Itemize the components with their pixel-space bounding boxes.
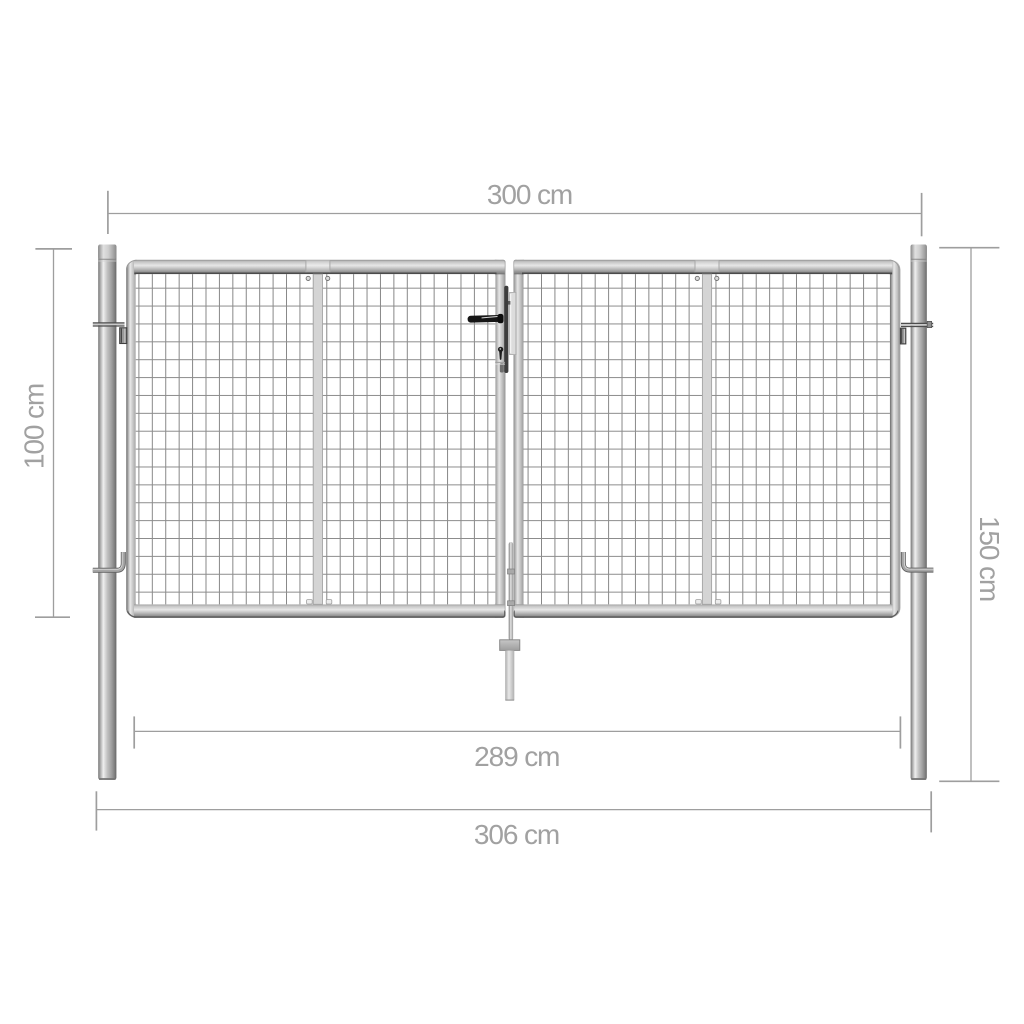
svg-text:300 cm: 300 cm — [487, 179, 572, 210]
svg-text:100 cm: 100 cm — [18, 384, 49, 469]
svg-text:150 cm: 150 cm — [974, 516, 1005, 601]
svg-text:306 cm: 306 cm — [474, 819, 559, 850]
svg-text:289 cm: 289 cm — [474, 741, 559, 772]
